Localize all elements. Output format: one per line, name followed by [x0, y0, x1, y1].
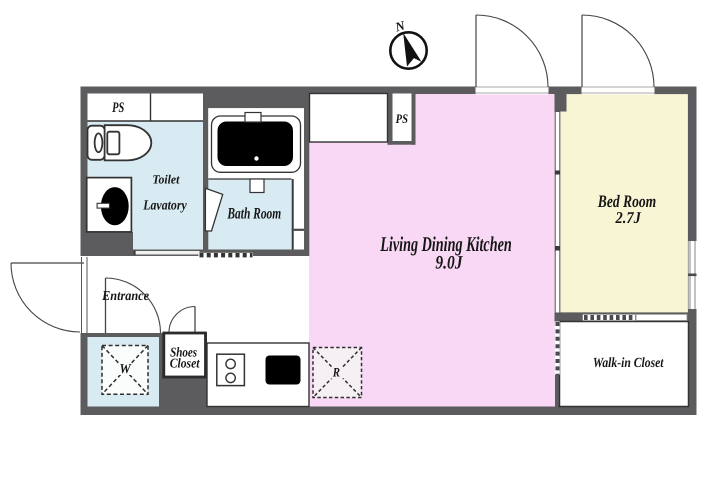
svg-text:Toilet: Toilet [152, 173, 179, 187]
svg-text:Lavatory: Lavatory [142, 198, 187, 213]
svg-text:R: R [332, 365, 340, 380]
svg-text:PS: PS [112, 100, 124, 116]
svg-text:Entrance: Entrance [101, 288, 149, 303]
svg-text:Walk-in Closet: Walk-in Closet [593, 356, 665, 371]
svg-text:9.0J: 9.0J [435, 253, 463, 274]
svg-text:Bath Room: Bath Room [227, 206, 282, 223]
svg-text:Closet: Closet [170, 356, 201, 371]
svg-text:PS: PS [396, 111, 408, 126]
svg-text:W: W [119, 361, 131, 376]
svg-text:2.7J: 2.7J [615, 208, 642, 227]
